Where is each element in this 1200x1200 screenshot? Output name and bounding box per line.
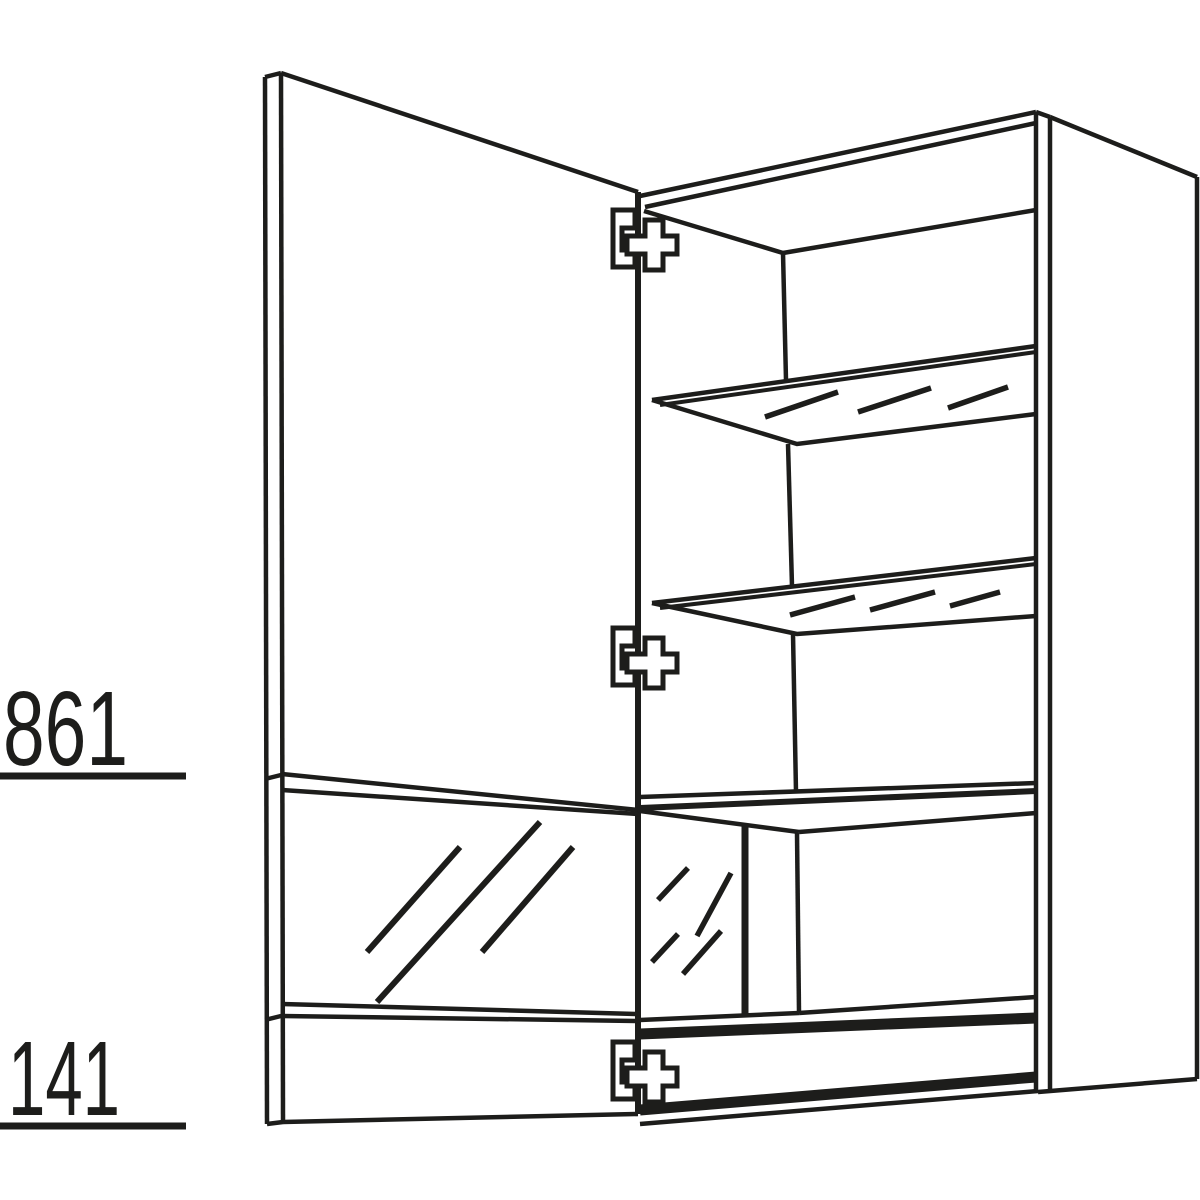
dimension-upper: 861 xyxy=(0,670,186,788)
glass-shelf-lower xyxy=(652,558,1036,634)
interior-glass-panel xyxy=(652,824,745,1016)
bottom-panel xyxy=(640,997,1038,1124)
door-division-upper xyxy=(265,774,638,814)
ceiling-back-edge xyxy=(783,210,1036,253)
glass-shelf-lower-hatching xyxy=(790,592,1000,615)
interior-glass-panel-hatching xyxy=(652,868,731,974)
fixed-middle-shelf xyxy=(640,783,1036,832)
cabinet-diagram: 861 141 xyxy=(0,0,1200,1200)
carcass-right-side xyxy=(1038,117,1197,1092)
hinge-middle-icon xyxy=(613,628,677,688)
dimension-lower-value: 141 xyxy=(8,1020,120,1138)
open-door xyxy=(265,73,638,1124)
dimension-lower: 141 xyxy=(0,1020,186,1138)
dimension-upper-value: 861 xyxy=(3,670,128,788)
hinge-bottom-icon xyxy=(613,1042,677,1102)
door-glass-insert-hatching xyxy=(367,822,573,1002)
glass-shelf-upper xyxy=(652,346,1036,444)
glass-shelf-upper-hatching xyxy=(765,387,1008,417)
cabinet-diagram-page: 861 141 xyxy=(0,0,1200,1200)
door-division-lower xyxy=(265,1004,638,1021)
